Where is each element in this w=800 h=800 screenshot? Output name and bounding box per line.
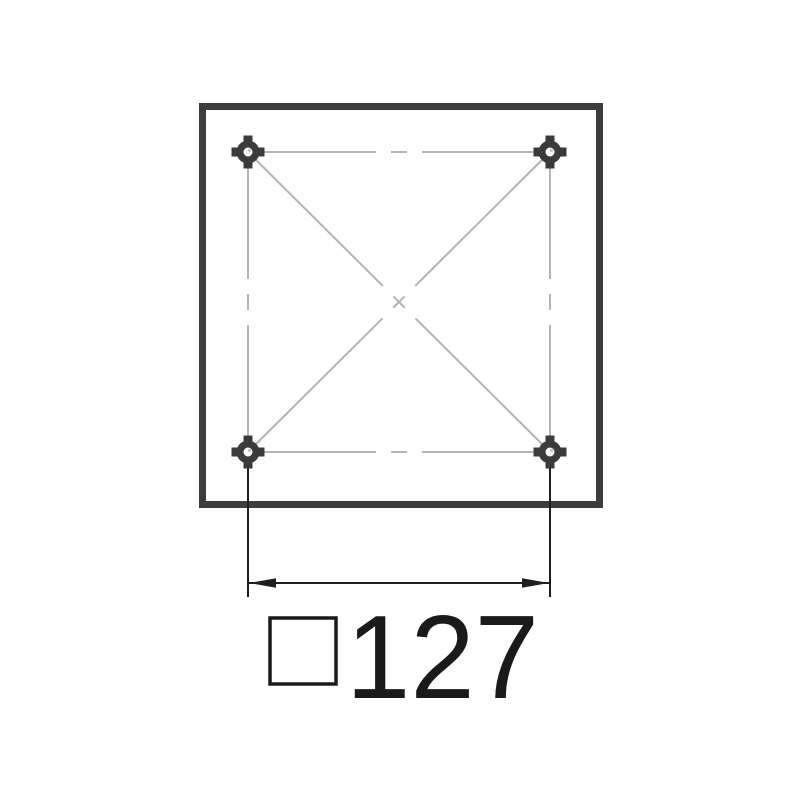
hole-highlight — [550, 149, 553, 152]
hole-highlight — [248, 149, 251, 152]
hole-ring — [542, 144, 558, 160]
hole-highlight — [550, 449, 553, 452]
dimension-arrow-left — [249, 578, 276, 588]
dimension-arrow-right — [522, 578, 549, 588]
dimension-value: 127 — [346, 591, 539, 724]
technical-drawing-canvas: 127 — [0, 0, 800, 800]
hole-ring — [240, 444, 256, 460]
plate-drawing: 127 — [0, 0, 800, 800]
hole-ring — [542, 444, 558, 460]
square-section-symbol-icon — [270, 618, 336, 684]
hole-highlight — [248, 449, 251, 452]
hole-ring — [240, 144, 256, 160]
